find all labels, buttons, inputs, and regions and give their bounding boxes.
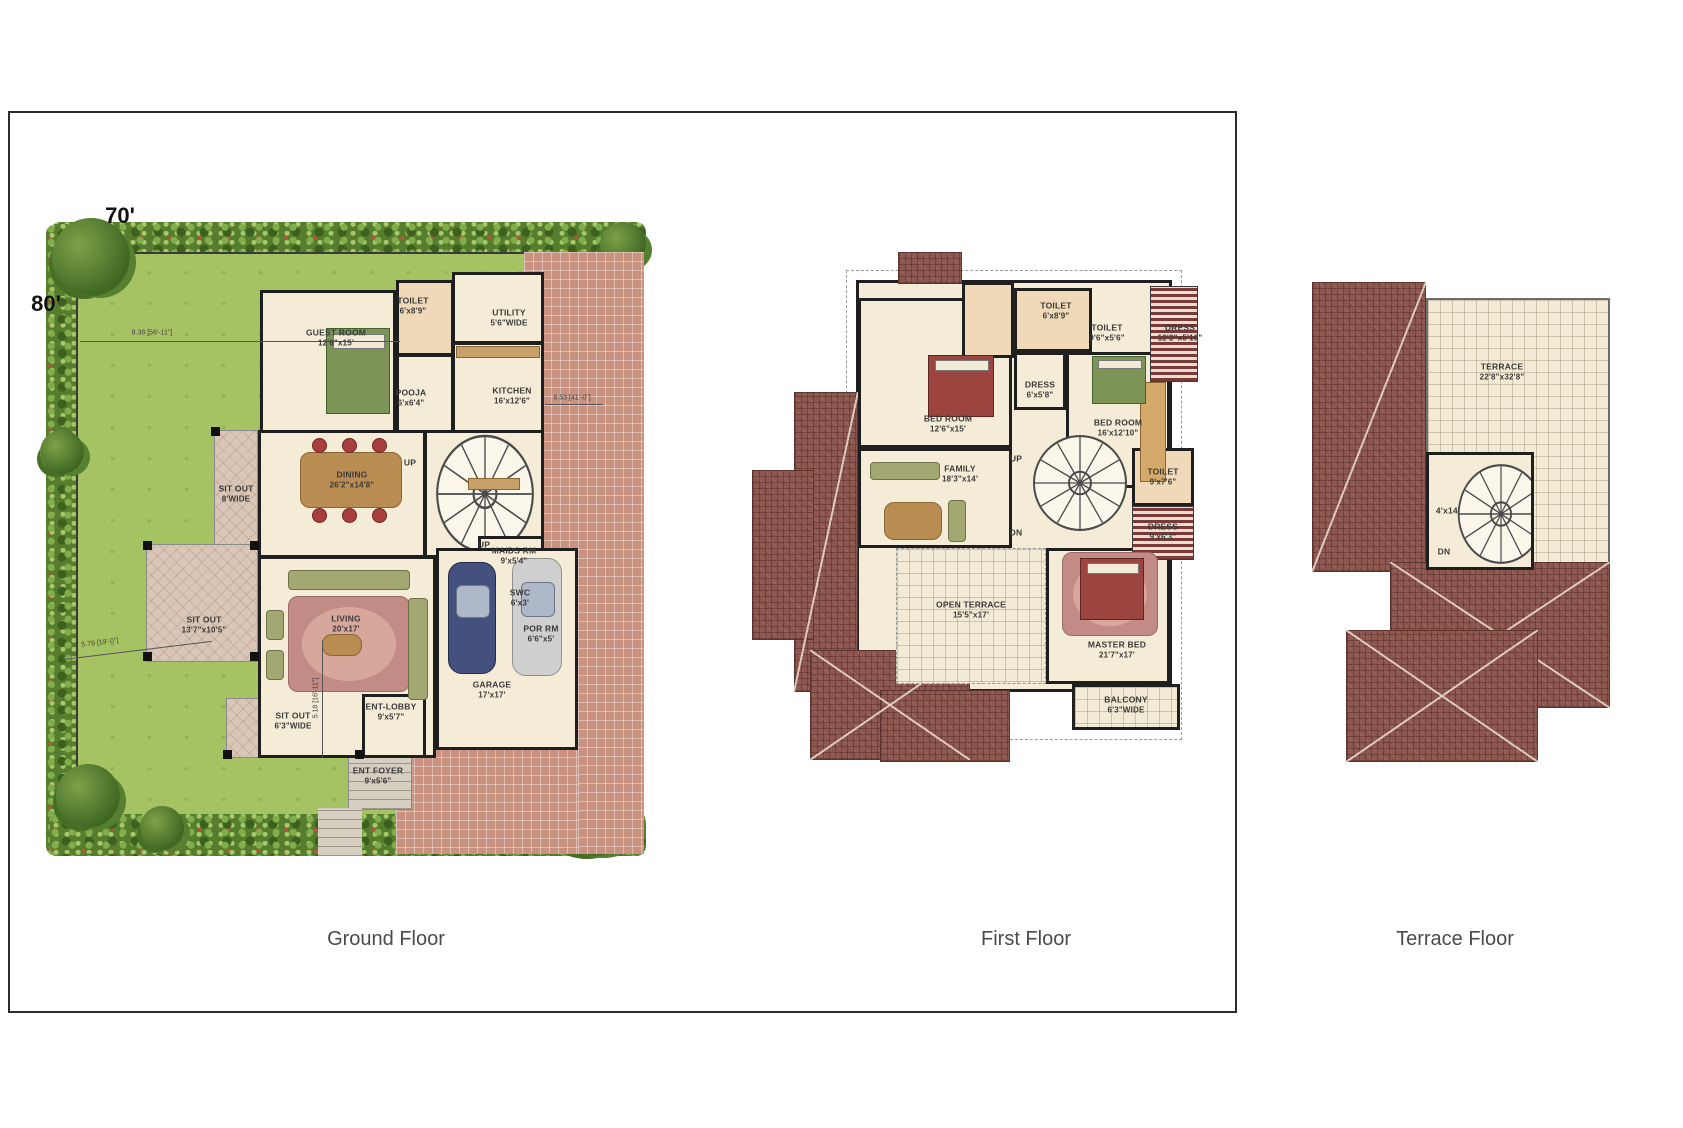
tree-icon	[52, 218, 130, 296]
room-label-ff-bedroom-1: BED ROOM12'6"x15'	[924, 414, 972, 435]
stair-label-dn: DN	[1010, 528, 1023, 539]
room-label-ff-dress-1: DRESS12'2"x5'10"	[1158, 323, 1203, 344]
roof-section	[898, 252, 962, 284]
column-post	[143, 652, 152, 661]
room-label-ff-bedroom-2: BED ROOM16'x12'10"	[1094, 418, 1142, 439]
floor-plan-sheet: 8.38 [56'-11"] 8.53 [41'-0"] 5.79 [19'-0…	[0, 0, 1683, 1128]
room-label-powder: POR RM6'6"x5'	[523, 624, 558, 645]
car-icon	[448, 562, 496, 674]
column-post	[355, 750, 364, 759]
site-annotation: 5.18 [16'-11"]	[313, 678, 320, 719]
room-label-ff-dress-2: DRESS6'x5'8"	[1025, 380, 1055, 401]
room-label-maids: MAIDS RM9'x5'4"	[492, 546, 537, 567]
car-icon	[512, 558, 562, 676]
bed-icon	[1080, 558, 1144, 620]
plot-width-label: 70'	[105, 203, 135, 229]
hedge-left	[46, 224, 76, 856]
spiral-stair-icon	[1030, 432, 1130, 534]
caption-terrace-floor: Terrace Floor	[1396, 928, 1514, 951]
column-post	[211, 427, 220, 436]
room-label-utility: UTILITY5'6"WIDE	[490, 308, 527, 329]
bed-icon	[1092, 356, 1146, 404]
room-ff-toilet-1	[962, 282, 1014, 358]
room-label-ent-foyer: ENT FOYER9'x5'6"	[353, 766, 403, 787]
room-label-ff-master: MASTER BED21'7"x17'	[1088, 640, 1146, 661]
armchair-icon	[266, 650, 284, 680]
room-label-ff-toilet-2: TOILET9'6"x5'6"	[1089, 323, 1124, 344]
room-label-ff-open-terrace: OPEN TERRACE15'5"x17'	[936, 600, 1006, 621]
room-label-ff-family: FAMILY18'3"x14'	[942, 464, 978, 485]
room-label-toilet: TOILET6'x8'9"	[397, 296, 428, 317]
room-label-kitchen: KITCHEN16'x12'6"	[492, 386, 531, 407]
plot-height-label: 80'	[31, 291, 61, 317]
room-label-sitout-8: SIT OUT8'WIDE	[219, 484, 254, 505]
site-annotation: 8.38 [56'-11"]	[132, 330, 173, 337]
armchair-icon	[948, 500, 966, 542]
room-label-ff-toilet-3: TOILET9'x7'6"	[1147, 467, 1178, 488]
room-label-living: LIVING20'x17'	[331, 614, 361, 635]
driveway-approach	[396, 748, 578, 854]
caption-ground-floor: Ground Floor	[327, 928, 445, 951]
armchair-icon	[266, 610, 284, 640]
room-label-guest: GUEST ROOM12'6"x15'	[306, 328, 366, 349]
roof-ridge	[1312, 282, 1426, 572]
family-table	[884, 502, 942, 540]
tree-icon	[140, 806, 184, 850]
stair-label-dn: DN	[1438, 547, 1451, 558]
room-label-ent-lobby: ENT-LOBBY9'x5'7"	[366, 702, 417, 723]
caption-first-floor: First Floor	[981, 928, 1071, 951]
coffee-table	[322, 634, 362, 656]
room-label-sitout-6: SIT OUT6'3"WIDE	[274, 711, 311, 732]
site-annotation: 8.53 [41'-0"]	[553, 395, 590, 402]
room-label-ff-balcony: BALCONY6'3"WIDE	[1104, 695, 1147, 716]
chair-icon	[342, 508, 357, 523]
column-post	[250, 652, 259, 661]
column-post	[223, 750, 232, 759]
compound-wall-left	[76, 252, 78, 816]
hedge-top	[50, 222, 646, 252]
stair-label-up: UP	[478, 540, 490, 551]
room-label-pooja: POOJA6'x6'4"	[396, 388, 427, 409]
stair-label-up: UP	[404, 458, 416, 469]
room-label-ff-toilet-1: TOILET6'x8'9"	[1040, 301, 1071, 322]
entrance-walkway-steps	[318, 808, 362, 856]
sit-out-13-slab	[146, 544, 258, 662]
tree-icon	[40, 430, 84, 474]
roof-ridge	[794, 392, 858, 692]
room-label-garage: GARAGE17'x17'	[473, 680, 512, 701]
room-label-dining: DINING26'2"x14'8"	[330, 470, 375, 491]
chair-icon	[342, 438, 357, 453]
room-label-ff-dress-3: DRESS9'x6'3"	[1148, 522, 1178, 543]
kitchen-counter	[456, 346, 540, 358]
room-label-terrace: TERRACE22'8"x32'8"	[1480, 362, 1525, 383]
bed-icon	[928, 355, 994, 417]
dimension-line	[322, 640, 323, 758]
chair-icon	[312, 508, 327, 523]
column-post	[143, 541, 152, 550]
room-label-sitout-13: SIT OUT13'7"x10'5"	[182, 615, 227, 636]
sofa-icon	[408, 598, 428, 700]
sofa-icon	[288, 570, 410, 590]
dimension-line	[545, 404, 603, 405]
roof-ridge	[1346, 630, 1538, 762]
chair-icon	[372, 438, 387, 453]
column-post	[250, 541, 259, 550]
chair-icon	[312, 438, 327, 453]
tree-icon	[56, 764, 120, 828]
room-label-swc: SWC6'x3'	[510, 588, 530, 609]
kitchen-island	[468, 478, 520, 490]
room-toilet-ground	[396, 280, 454, 356]
room-label-terrace-stair: 4'x14'	[1436, 506, 1460, 517]
stair-label-up: UP	[1010, 454, 1022, 465]
sofa-icon	[870, 462, 940, 480]
chair-icon	[372, 508, 387, 523]
spiral-stair-icon	[1455, 461, 1534, 567]
